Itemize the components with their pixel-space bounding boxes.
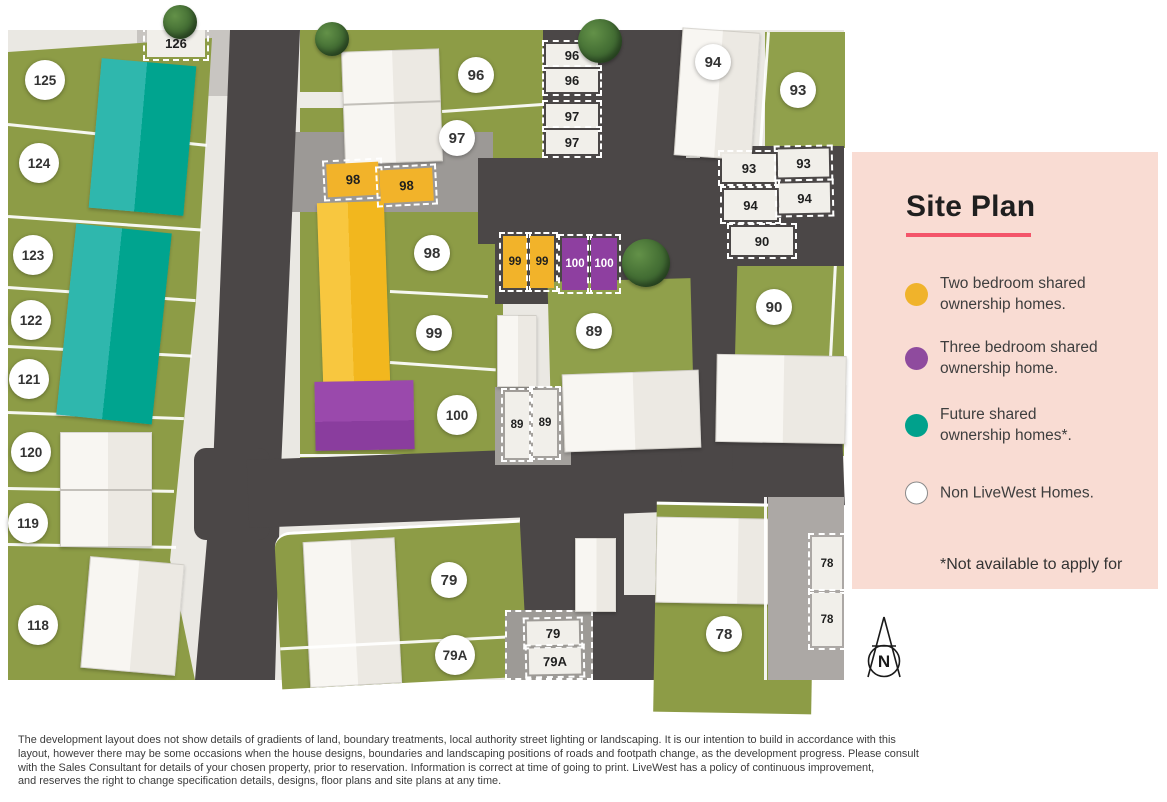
plot-label-100: 100: [437, 395, 477, 435]
legend-item-two-bed: Two bedroom shared ownership homes.: [905, 273, 1086, 315]
title-underline: [906, 233, 1031, 237]
parking-space-97a: 97: [546, 104, 598, 128]
parking-space-78b: 78: [812, 593, 842, 646]
disclaimer-line: layout, however there may be some occasi…: [18, 748, 963, 762]
plot-label-96: 96: [458, 57, 494, 93]
plot-label-79A: 79A: [435, 635, 475, 675]
plot-label-99: 99: [416, 315, 452, 351]
building-89: [562, 370, 702, 453]
plot-label-90: 90: [756, 289, 792, 325]
parking-space-79p: 79: [527, 621, 579, 646]
plot-label-119: 119: [8, 503, 48, 543]
legend-item-non-livewest: Non LiveWest Homes.: [905, 482, 1094, 505]
plot-label-98: 98: [414, 235, 450, 271]
plot-label-122: 122: [11, 300, 51, 340]
plot-label-78: 78: [706, 616, 742, 652]
parking-space-99b: 99: [530, 236, 554, 288]
plot-label-124: 124: [19, 143, 59, 183]
tree-icon: [315, 22, 349, 56]
parking-space-90p: 90: [731, 227, 793, 255]
building-divider: [60, 489, 152, 491]
parking-space-100b: 100: [591, 238, 617, 290]
legend-label: Two bedroom shared: [940, 273, 1086, 294]
plot-label-93: 93: [780, 72, 816, 108]
building-future-north: [89, 58, 197, 216]
building-mid: [497, 315, 537, 387]
parking-space-98b: 98: [379, 168, 434, 204]
curb-line: [764, 497, 767, 680]
building-98-99-two-bed: [317, 201, 390, 383]
legend-panel: Site Plan Two bedroom shared ownership h…: [852, 152, 1158, 589]
legend-item-future: Future shared ownership homes*.: [905, 404, 1072, 446]
parking-space-96b: 96: [546, 69, 598, 92]
legend-footnote: *Not available to apply for: [940, 556, 1122, 574]
compass-north-label: N: [878, 652, 890, 671]
tree-icon: [622, 239, 670, 287]
north-compass-icon: N: [845, 598, 925, 686]
parking-space-97b: 97: [546, 130, 598, 154]
plots-79-79A-block: [274, 520, 528, 690]
legend-swatch-purple: [905, 347, 928, 370]
parking-space-79Ap: 79A: [529, 648, 581, 675]
disclaimer-line: The development layout does not show det…: [18, 734, 963, 748]
legend-swatch-teal: [905, 414, 928, 437]
tree-icon: [163, 5, 197, 39]
plot-label-79: 79: [431, 562, 467, 598]
plot-label-120: 120: [11, 432, 51, 472]
legend-item-three-bed: Three bedroom shared ownership home.: [905, 337, 1098, 379]
legend-label: ownership home.: [940, 358, 1098, 379]
plot-label-125: 125: [25, 60, 65, 100]
plot-label-118: 118: [18, 605, 58, 645]
legend-swatch-white: [905, 482, 928, 505]
parking-space-89b: 89: [533, 390, 557, 456]
parking-space-98a: 98: [326, 162, 380, 198]
plot-label-97: 97: [439, 120, 475, 156]
parking-space-100a: 100: [562, 238, 588, 290]
parking-space-78a: 78: [812, 537, 842, 590]
disclaimer-line: with the Sales Consultant for details of…: [18, 762, 963, 776]
legend-swatch-yellow: [905, 283, 928, 306]
building-90: [715, 354, 847, 444]
building-79-79A: [303, 537, 403, 688]
building-96-97: [341, 48, 443, 164]
plot-label-121: 121: [9, 359, 49, 399]
plot-label-89: 89: [576, 313, 612, 349]
parking-space-93b: 93: [778, 149, 829, 178]
site-plan-page: 12696969797939394949089897979A7878989899…: [0, 0, 1167, 802]
building-100-three-bed: [314, 380, 414, 451]
parking-space-94b: 94: [779, 183, 831, 214]
parking-space-93a: 93: [722, 154, 776, 182]
legend-label: Future shared: [940, 404, 1072, 425]
building-future-south: [56, 224, 172, 425]
building-garage: [575, 538, 616, 612]
tree-icon: [578, 19, 622, 63]
legend-label: ownership homes.: [940, 294, 1086, 315]
footpath: [290, 92, 345, 108]
plot-label-123: 123: [13, 235, 53, 275]
disclaimer-line: and reserves the right to change specifi…: [18, 775, 963, 789]
site-map: 12696969797939394949089897979A7878989899…: [8, 30, 844, 680]
building-118: [80, 556, 184, 676]
plot-label-94: 94: [695, 44, 731, 80]
legend-label: ownership homes*.: [940, 425, 1072, 446]
parking-space-94a: 94: [724, 190, 777, 220]
legend-label: Non LiveWest Homes.: [940, 483, 1094, 504]
disclaimer-text: The development layout does not show det…: [18, 734, 963, 789]
parking-space-99a: 99: [503, 236, 527, 288]
parking-space-89a: 89: [505, 392, 529, 458]
page-title: Site Plan: [906, 190, 1035, 224]
legend-label: Three bedroom shared: [940, 337, 1098, 358]
